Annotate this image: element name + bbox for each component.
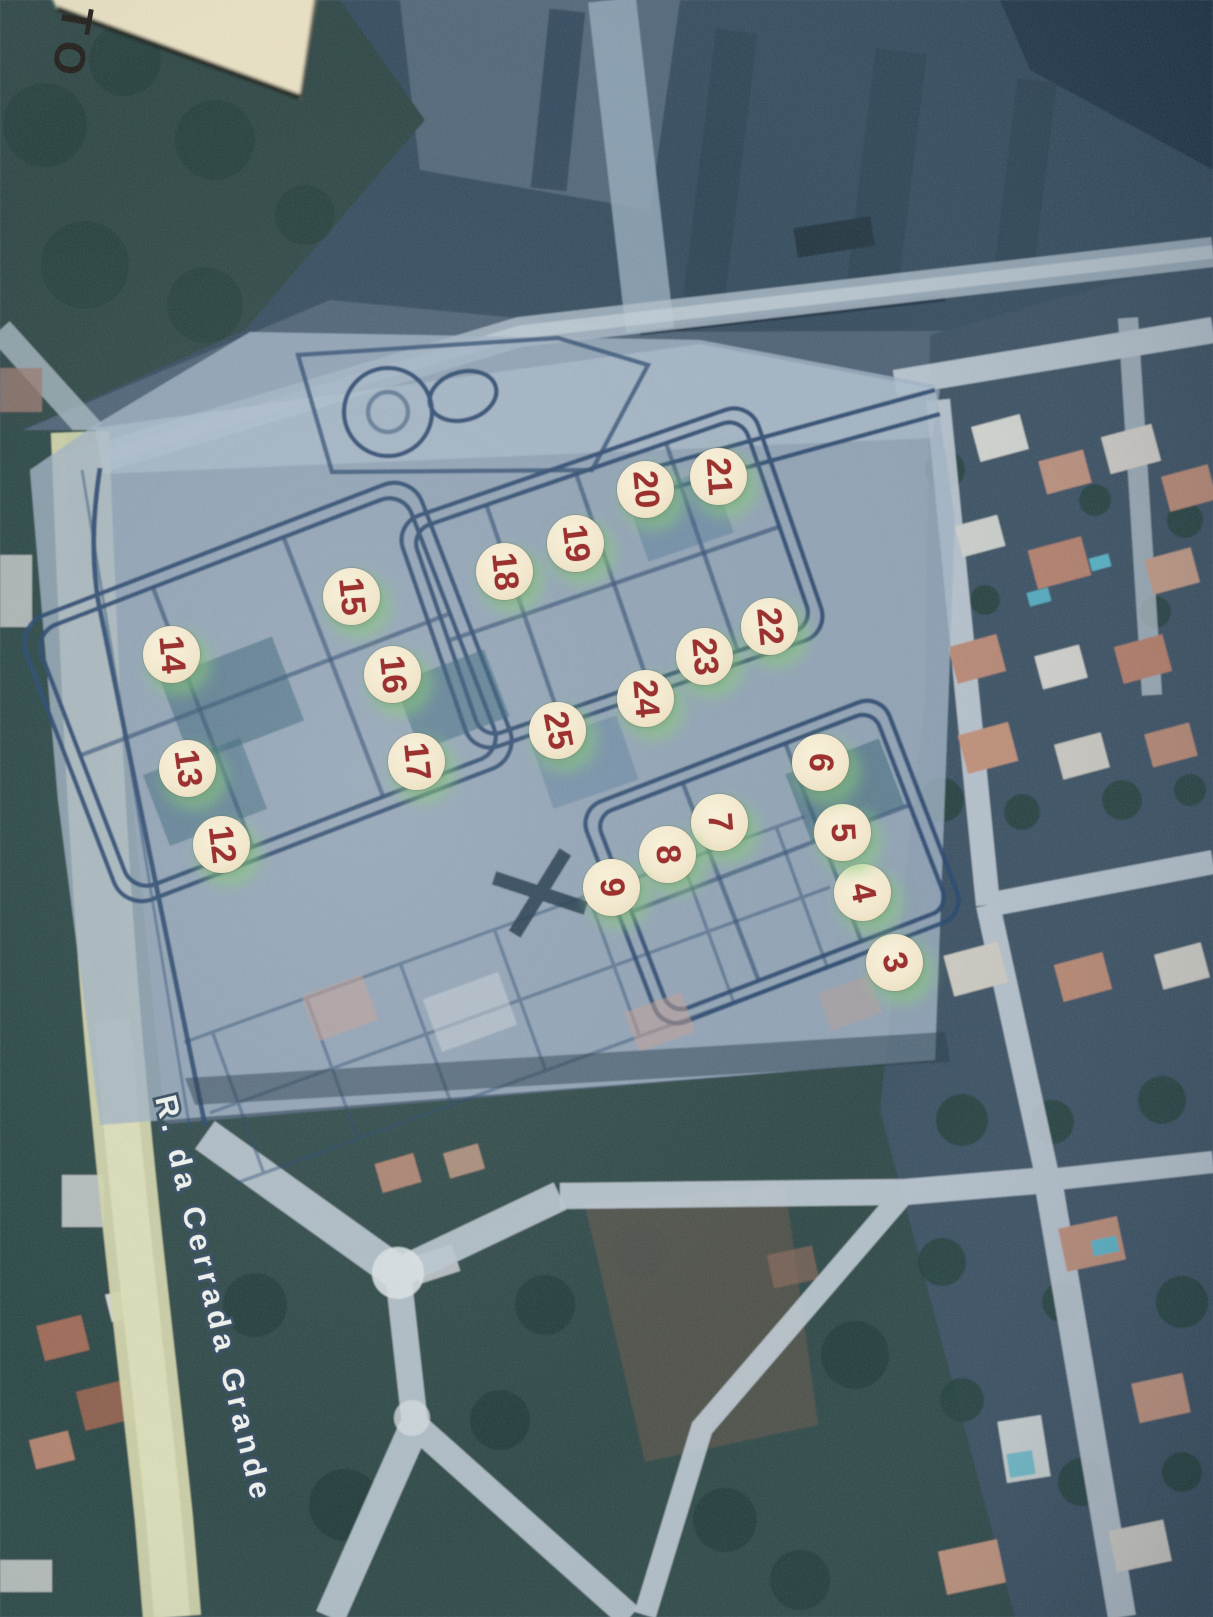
lot-marker-number: 25 <box>524 697 591 764</box>
lot-marker-25: 25 <box>529 702 586 759</box>
lot-marker-22: 22 <box>741 598 798 655</box>
lot-marker-number: 4 <box>829 859 897 927</box>
lot-marker-8: 8 <box>639 826 696 883</box>
lot-marker-6: 6 <box>792 734 849 791</box>
lot-marker-15: 15 <box>323 568 380 625</box>
lot-marker-number: 13 <box>155 736 219 800</box>
lot-marker-13: 13 <box>159 740 216 797</box>
lot-marker-21: 21 <box>690 448 747 505</box>
lot-marker-9: 9 <box>583 859 640 916</box>
lot-marker-number: 20 <box>615 459 677 521</box>
lot-marker-number: 15 <box>320 565 383 628</box>
lot-marker-number: 5 <box>812 802 873 863</box>
lot-marker-number: 9 <box>581 857 643 919</box>
marker-layer: 34567891213141516171819202122232425 <box>0 0 1213 1617</box>
lot-marker-number: 14 <box>141 624 203 686</box>
lot-marker-17: 17 <box>388 733 445 790</box>
lot-marker-number: 7 <box>689 792 751 854</box>
lot-marker-16: 16 <box>364 646 421 703</box>
lot-marker-23: 23 <box>676 628 733 685</box>
lot-marker-number: 16 <box>361 643 424 706</box>
lot-marker-number: 19 <box>544 512 608 576</box>
lot-marker-number: 21 <box>688 446 749 507</box>
lot-marker-24: 24 <box>617 670 674 727</box>
lot-marker-number: 22 <box>738 595 801 658</box>
lot-marker-3: 3 <box>866 934 923 991</box>
lot-marker-5: 5 <box>814 804 871 861</box>
lot-marker-7: 7 <box>691 794 748 851</box>
lot-marker-number: 6 <box>790 732 851 793</box>
lot-marker-number: 8 <box>636 823 699 886</box>
lot-marker-14: 14 <box>143 626 200 683</box>
lot-marker-19: 19 <box>547 515 604 572</box>
lot-marker-number: 3 <box>859 927 930 998</box>
lot-marker-20: 20 <box>617 461 674 518</box>
lot-marker-18: 18 <box>476 543 533 600</box>
lot-marker-4: 4 <box>834 864 891 921</box>
lot-marker-number: 17 <box>385 730 448 793</box>
lot-marker-number: 23 <box>674 626 736 688</box>
lot-marker-number: 18 <box>473 540 536 603</box>
lot-marker-number: 12 <box>190 813 254 877</box>
lot-marker-12: 12 <box>193 816 250 873</box>
photographed-aerial-map: R. da Cerrada Grande TO 3456789121314151… <box>0 0 1213 1617</box>
lot-marker-number: 24 <box>615 668 677 730</box>
